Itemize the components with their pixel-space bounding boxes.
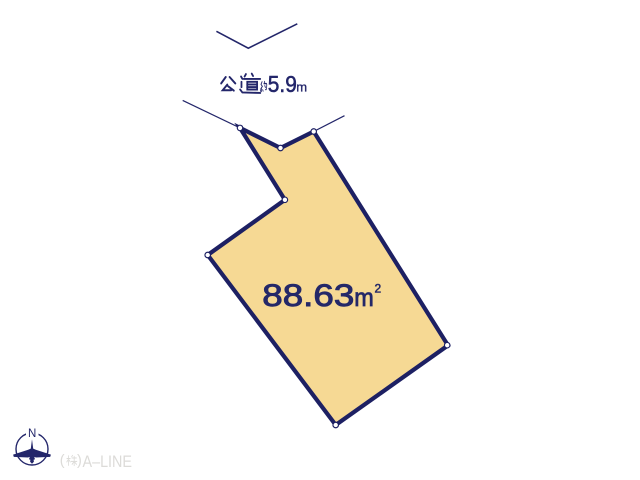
svg-text:(: ( xyxy=(60,453,65,469)
svg-text:2: 2 xyxy=(375,282,382,296)
svg-text:m: m xyxy=(354,284,374,312)
svg-text:5.9: 5.9 xyxy=(268,71,297,97)
svg-text:88.63: 88.63 xyxy=(262,278,354,313)
svg-text:N: N xyxy=(28,428,36,440)
svg-text:): ) xyxy=(77,453,82,469)
svg-text:m: m xyxy=(296,80,307,95)
svg-text:A–LINE: A–LINE xyxy=(83,452,133,471)
